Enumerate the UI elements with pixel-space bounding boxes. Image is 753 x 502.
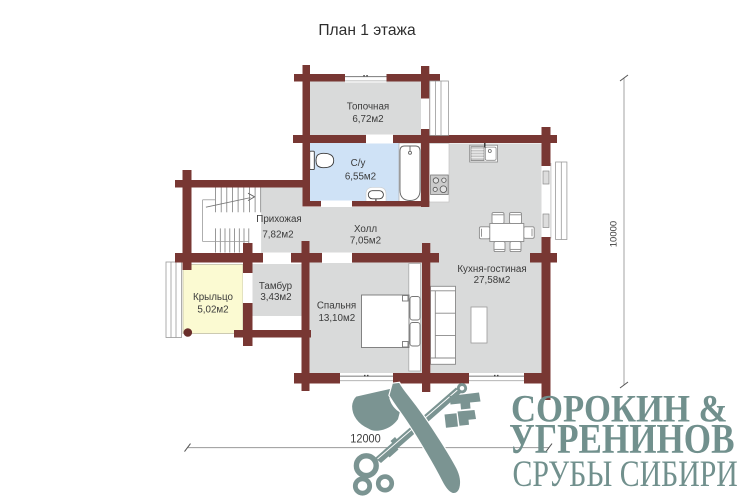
svg-text:3,43м2: 3,43м2 (260, 292, 291, 303)
svg-text:10000: 10000 (608, 221, 619, 247)
svg-text:Холл: Холл (354, 224, 377, 235)
svg-text:Прихожая: Прихожая (256, 214, 301, 225)
svg-text:7,82м2: 7,82м2 (262, 230, 293, 241)
svg-text:Тамбур: Тамбур (259, 281, 293, 292)
svg-text:27,58м2: 27,58м2 (474, 275, 511, 286)
svg-text:План 1 этажа: План 1 этажа (318, 22, 416, 39)
svg-text:12000: 12000 (350, 431, 381, 445)
svg-text:Кухня-гостиная: Кухня-гостиная (457, 264, 526, 275)
svg-text:6,72м2: 6,72м2 (352, 114, 383, 125)
svg-text:6,55м2: 6,55м2 (345, 172, 376, 183)
svg-text:13,10м2: 13,10м2 (318, 313, 355, 324)
svg-text:5,02м2: 5,02м2 (197, 305, 228, 316)
svg-text:7,05м2: 7,05м2 (350, 236, 381, 247)
svg-text:Спальня: Спальня (317, 301, 356, 312)
svg-text:СРУБЫ СИБИРИ: СРУБЫ СИБИРИ (513, 454, 738, 495)
svg-text:Крыльцо: Крыльцо (193, 292, 234, 303)
svg-text:С/у: С/у (351, 158, 366, 169)
svg-text:Топочная: Топочная (347, 102, 389, 113)
